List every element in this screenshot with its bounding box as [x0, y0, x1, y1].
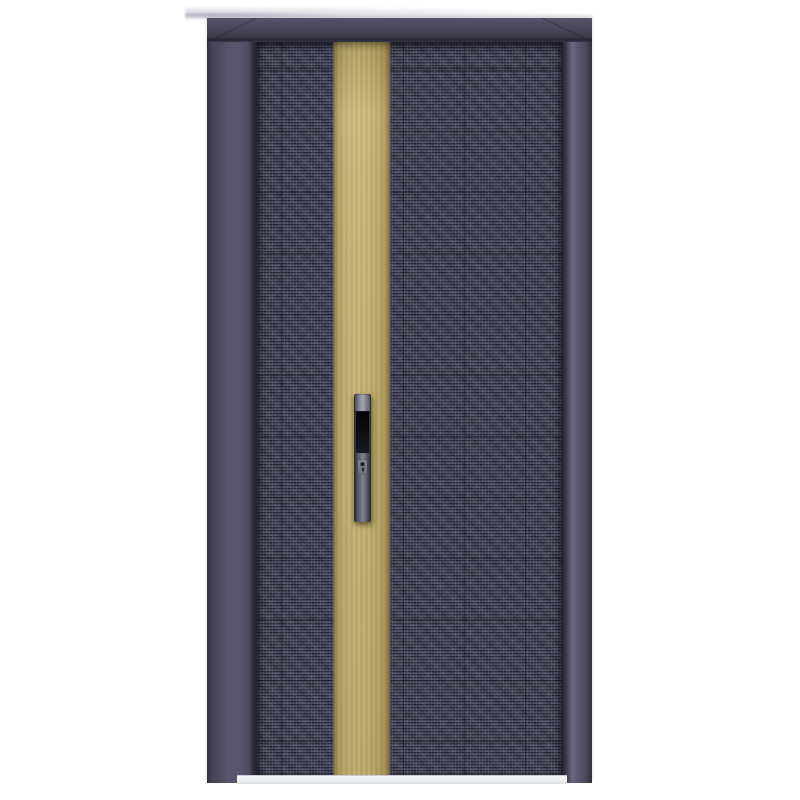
door-handle	[354, 394, 371, 522]
handle-top-cap	[355, 395, 370, 412]
door-frame-left-jamb	[207, 18, 257, 783]
door-leaf-panel	[257, 42, 562, 777]
product-photo	[0, 0, 800, 800]
handle-grip-recess	[356, 412, 369, 453]
keyhole	[358, 460, 367, 474]
door-frame-head	[207, 18, 592, 42]
door-sill	[237, 775, 567, 784]
door-frame-right-jamb	[562, 18, 592, 783]
